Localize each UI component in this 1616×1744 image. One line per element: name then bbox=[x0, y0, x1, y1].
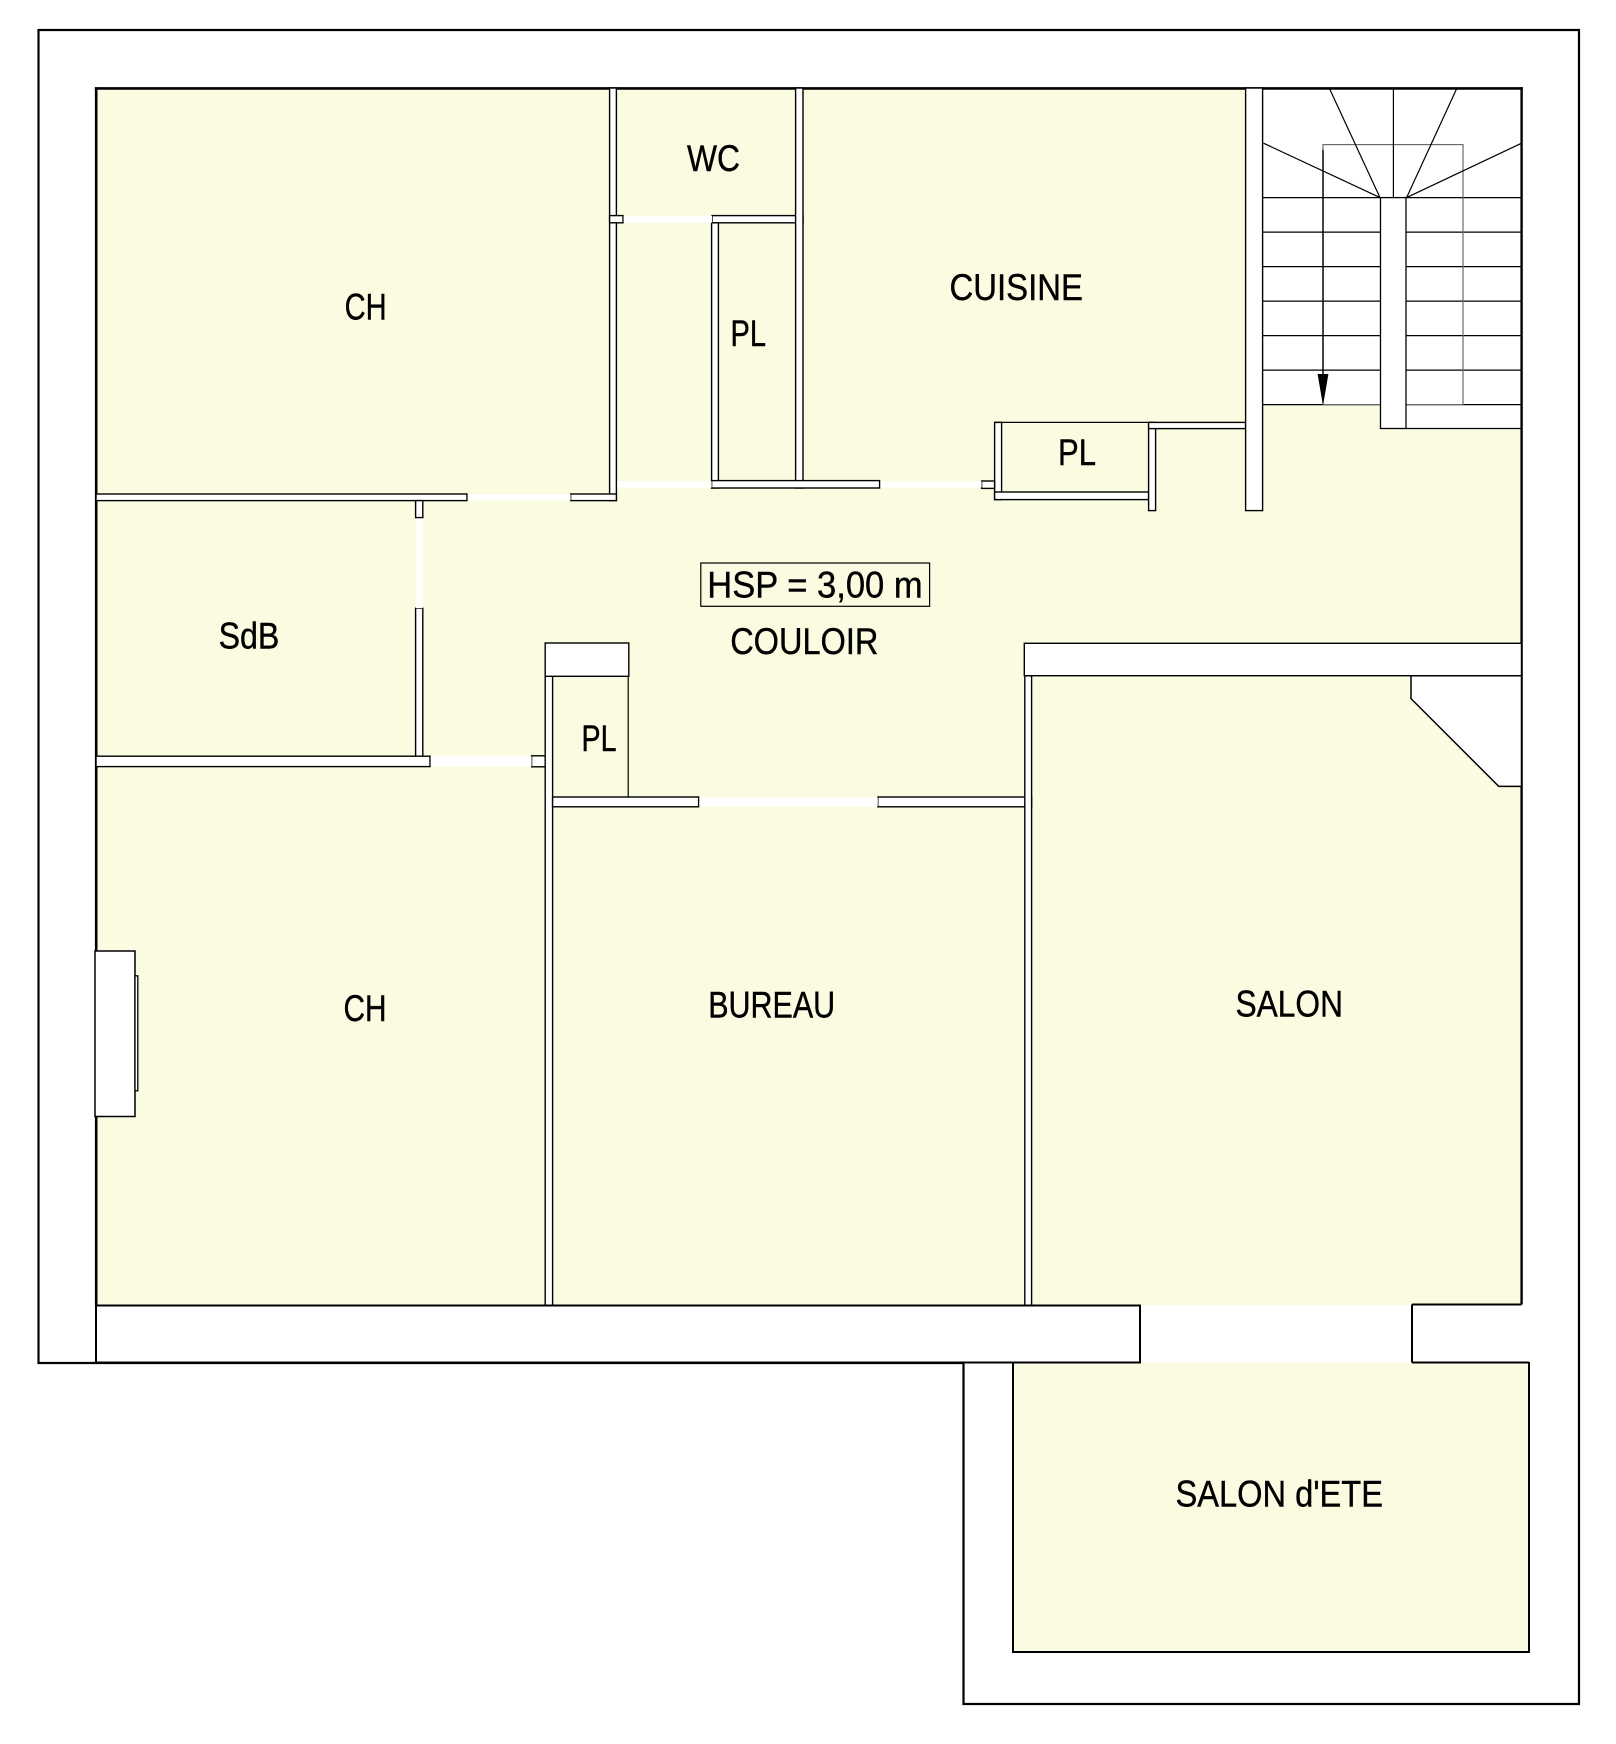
svg-text:CH: CH bbox=[345, 286, 387, 328]
svg-text:WC: WC bbox=[687, 137, 740, 179]
svg-text:CUISINE: CUISINE bbox=[950, 266, 1084, 308]
svg-text:PL: PL bbox=[1058, 431, 1096, 473]
svg-text:SALON: SALON bbox=[1236, 982, 1344, 1024]
svg-text:SALON d'ETE: SALON d'ETE bbox=[1176, 1473, 1384, 1515]
svg-text:SdB: SdB bbox=[219, 614, 280, 656]
svg-text:PL: PL bbox=[731, 312, 767, 354]
svg-text:HSP = 3,00 m: HSP = 3,00 m bbox=[707, 563, 922, 605]
svg-text:BUREAU: BUREAU bbox=[708, 984, 835, 1026]
svg-text:PL: PL bbox=[582, 717, 617, 759]
svg-text:COULOIR: COULOIR bbox=[730, 620, 878, 662]
svg-text:CH: CH bbox=[344, 987, 387, 1029]
